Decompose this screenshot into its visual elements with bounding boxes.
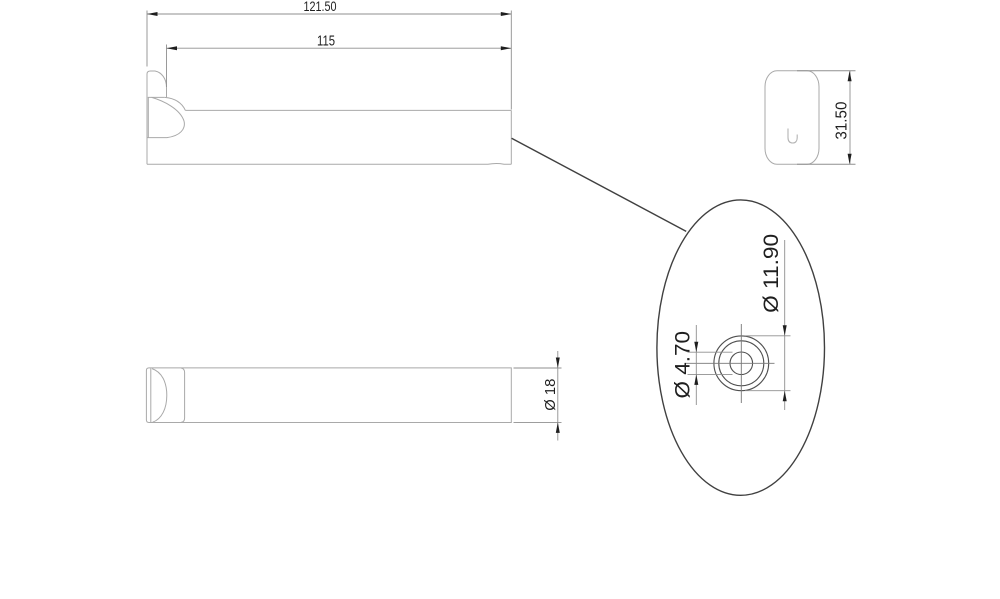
svg-text:Ø 11.90: Ø 11.90 [759,234,783,313]
svg-text:Ø 4.70: Ø 4.70 [671,331,695,399]
svg-text:115: 115 [317,32,335,49]
svg-text:121.50: 121.50 [304,0,337,14]
svg-text:Ø 18: Ø 18 [542,379,559,411]
svg-text:31.50: 31.50 [833,102,850,140]
